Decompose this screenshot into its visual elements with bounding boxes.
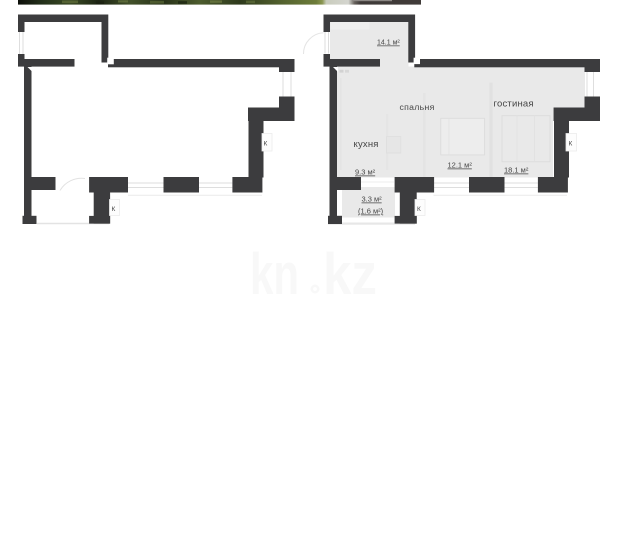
svg-text:кухня: кухня [354, 139, 379, 150]
svg-text:9.3 м²: 9.3 м² [355, 168, 376, 177]
svg-text:К: К [264, 141, 268, 148]
svg-text:12.1 м²: 12.1 м² [448, 161, 473, 170]
svg-text:kz: kz [323, 242, 377, 307]
svg-text:kn: kn [250, 242, 299, 307]
svg-text:14.1 м²: 14.1 м² [377, 40, 400, 47]
svg-text:3.3 м²: 3.3 м² [362, 195, 383, 204]
svg-text:гостиная: гостиная [494, 99, 534, 110]
svg-text:К: К [569, 141, 573, 148]
svg-text:спальня: спальня [400, 102, 435, 112]
svg-text:18.1 м²: 18.1 м² [504, 166, 529, 175]
svg-text:К: К [417, 206, 421, 213]
svg-text:(1.6 м²): (1.6 м²) [358, 207, 384, 216]
svg-text:К: К [112, 206, 116, 213]
